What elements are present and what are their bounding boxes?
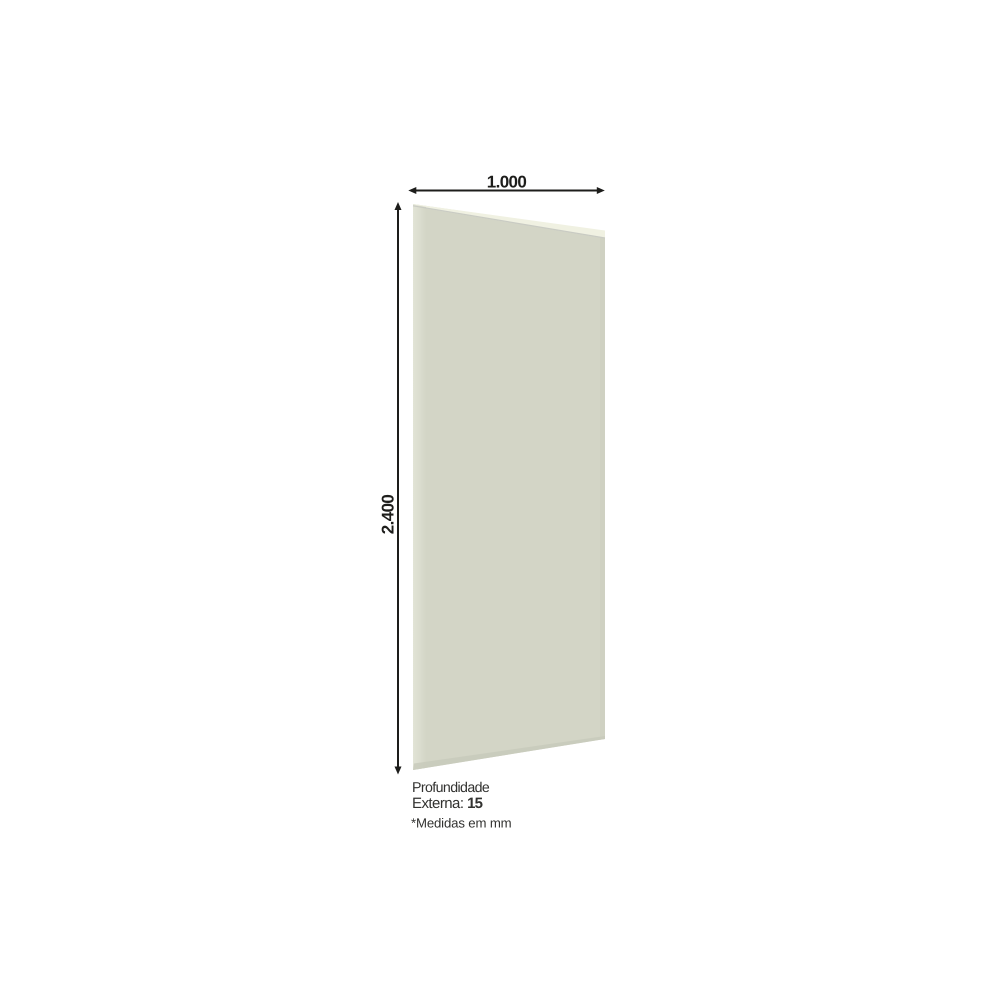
svg-text:2.400: 2.400 xyxy=(379,495,398,535)
svg-text:Profundidade: Profundidade xyxy=(412,780,490,796)
svg-text:1.000: 1.000 xyxy=(487,173,527,192)
svg-text:*Medidas em mm: *Medidas em mm xyxy=(411,816,512,831)
svg-text:Externa: 15: Externa: 15 xyxy=(412,795,483,812)
